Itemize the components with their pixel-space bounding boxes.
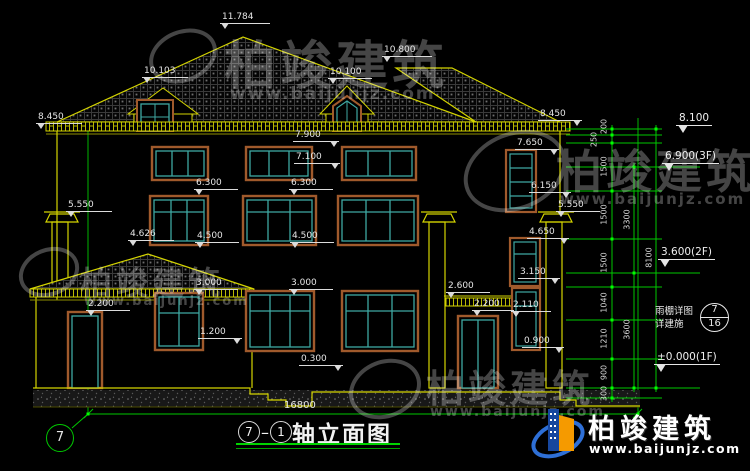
chain-dim-3300: 3300	[623, 200, 632, 240]
spot-level-8.450: 8.450	[36, 112, 82, 124]
spot-level-7.650: 7.650	[515, 138, 559, 150]
wing-roof	[30, 254, 254, 300]
spot-level-10.800: 10.800	[382, 45, 432, 57]
chain-dim-1500: 1500	[600, 195, 609, 235]
spot-level-5.550: 5.550	[556, 200, 600, 212]
spot-level-3.150: 3.150	[518, 267, 560, 279]
title-underline	[236, 443, 400, 445]
floor-level-6.900(3F): 6.900(3F)	[662, 150, 719, 164]
detail-bubble: 7 16	[700, 303, 729, 332]
chain-dim-1500: 1500	[600, 147, 609, 187]
spot-level-8.450: 8.450	[538, 109, 582, 121]
roof-group	[46, 37, 570, 134]
title-underline-2	[236, 448, 400, 449]
spot-level-2.600: 2.600	[446, 281, 490, 293]
brand-logo-icon	[530, 401, 588, 467]
floor-level-3.600(2F): 3.600(2F)	[658, 246, 715, 260]
spot-level-3.000: 3.000	[289, 278, 333, 290]
spot-level-6.150: 6.150	[529, 181, 571, 193]
chain-dim-3600: 3600	[623, 310, 632, 350]
chain-dim-1040: 1040	[600, 283, 609, 323]
spot-level-5.550: 5.550	[66, 200, 112, 212]
spot-level-4.650: 4.650	[527, 227, 569, 239]
title-dash: –	[261, 423, 269, 442]
chain-dim-250: 250	[590, 120, 599, 160]
spot-level-1.200: 1.200	[198, 327, 242, 339]
spot-level-0.900: 0.900	[522, 336, 564, 348]
spot-level-11.784: 11.784	[220, 12, 270, 24]
brand-url: www.baijunjz.com	[589, 441, 741, 456]
canopy-detail-callout: 雨棚详图 详建施 7 16	[655, 303, 729, 332]
axis-circle-a: 7	[238, 421, 260, 443]
chain-dim-1500: 1500	[600, 243, 609, 283]
overall-width-dim: 16800	[284, 400, 316, 411]
floor-level-8.100: 8.100	[676, 112, 712, 126]
spot-level-2.110: 2.110	[511, 300, 551, 312]
callout-text: 雨棚详图 详建施	[655, 305, 693, 331]
floor-level-±0.000(1F): ±0.000(1F)	[654, 351, 720, 365]
chain-dim-200: 200	[600, 107, 609, 147]
axis-bubble-7: 7	[46, 424, 74, 452]
spot-level-3.000: 3.000	[194, 278, 238, 290]
spot-level-6.300: 6.300	[194, 178, 238, 190]
spot-level-6.300: 6.300	[289, 178, 333, 190]
axis-circle-b: 1	[270, 421, 292, 443]
spot-level-0.300: 0.300	[299, 354, 343, 366]
chain-dim-8100: 8100	[645, 238, 654, 278]
brand-logo: 柏竣建筑 www.baijunjz.com	[530, 401, 748, 467]
spot-level-2.200: 2.200	[86, 299, 130, 311]
spot-level-7.100: 7.100	[294, 152, 340, 164]
spot-level-4.626: 4.626	[128, 229, 174, 241]
spot-level-10.103: 10.103	[142, 66, 188, 78]
spot-level-7.900: 7.900	[293, 130, 339, 142]
spot-level-4.500: 4.500	[195, 231, 239, 243]
cad-elevation-screenshot: 柏竣建筑 www.baijunjz.com 柏竣建筑 www.baijunjz.…	[0, 0, 750, 471]
spot-level-10.100: 10.100	[328, 67, 372, 79]
spot-level-4.500: 4.500	[290, 231, 334, 243]
spot-level-2.200: 2.200	[472, 299, 514, 311]
